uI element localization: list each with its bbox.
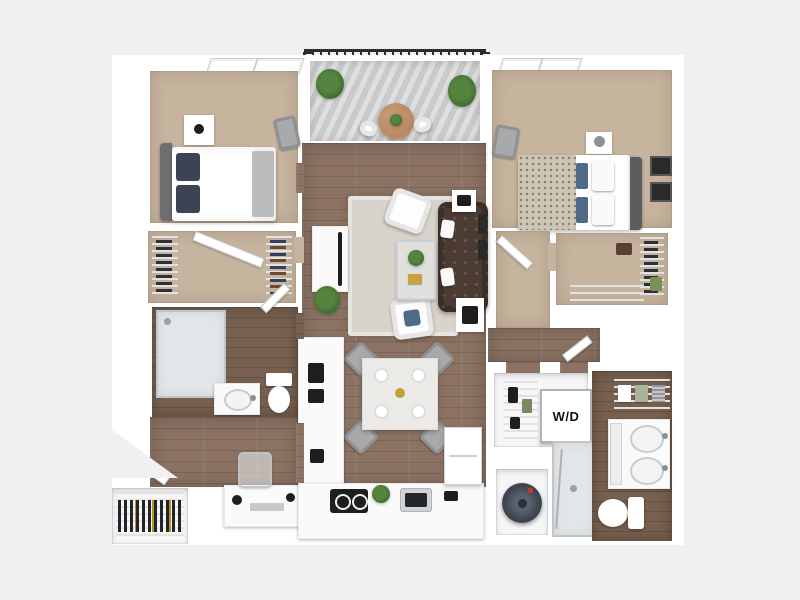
closet1-clothes-left <box>156 240 172 294</box>
closet1-doorway <box>294 237 304 263</box>
dining-centerpiece <box>395 388 405 398</box>
desk-keyboard <box>250 503 284 511</box>
closet1-door <box>192 231 264 268</box>
toilet-bowl <box>598 499 628 527</box>
bedroom1-pillow <box>176 185 200 213</box>
bedroom2 <box>492 70 672 228</box>
cooktop-burner <box>352 494 368 510</box>
bathroom1-sink <box>224 389 252 411</box>
balcony-plant-right <box>448 75 476 107</box>
bedroom1 <box>150 71 298 223</box>
peninsula-item <box>308 363 324 383</box>
dining-plate <box>411 404 426 419</box>
shower-door-line <box>555 449 563 529</box>
bedroom2-wall-art <box>650 156 672 176</box>
bathroom1-toilet-tank <box>266 373 292 386</box>
towel-stack-gray <box>652 385 665 402</box>
towel-stack-green <box>635 385 648 402</box>
kitchen-sink-basin <box>405 493 427 507</box>
bedroom1-foot-blanket <box>252 151 274 217</box>
closet2 <box>556 233 668 305</box>
tv-screen <box>338 232 342 286</box>
refrigerator-door-seam <box>449 455 477 457</box>
dining-plate <box>411 368 426 383</box>
sofa-pillow <box>440 267 455 287</box>
bathroom2-toilet <box>596 489 648 535</box>
bedroom2-lamp <box>594 136 605 147</box>
kitchen-peninsula <box>298 337 344 485</box>
bedroom2-wall-art <box>650 182 672 202</box>
coat-closet <box>112 488 188 544</box>
bedroom1-lamp <box>194 124 204 134</box>
sofa-pillow <box>440 219 455 239</box>
bedroom2-pillow-blue <box>576 197 588 223</box>
bedroom1-headboard <box>160 143 172 221</box>
bathroom2-sink <box>630 425 664 453</box>
pantry-item-green <box>522 399 532 413</box>
towel-stack <box>618 385 631 402</box>
bathroom1 <box>152 307 298 417</box>
water-heater-cap <box>518 499 527 508</box>
bathroom1-vanity <box>214 383 260 415</box>
bathroom2 <box>592 371 672 541</box>
bedroom1-chair <box>273 115 301 151</box>
washer-dryer-unit: W/D <box>540 389 592 443</box>
bedroom2-knit-blanket <box>518 155 576 230</box>
utility-closet <box>496 469 548 535</box>
dining-table <box>362 358 438 430</box>
living-wall-art <box>478 214 487 234</box>
bedroom2-pillow-blue <box>576 163 588 189</box>
side-table-bottom <box>456 298 484 332</box>
foyer <box>150 417 298 487</box>
cooktop <box>330 489 368 513</box>
kitchen-counter <box>298 483 484 539</box>
bedroom1-pillow <box>176 153 200 181</box>
living-wall-art <box>478 240 487 260</box>
bedroom2-pillow <box>592 161 614 191</box>
desk <box>224 485 300 527</box>
dining-plate <box>374 404 389 419</box>
refrigerator <box>444 427 482 485</box>
bedroom2-pillow <box>592 195 614 225</box>
balcony-table-plant <box>390 114 402 126</box>
tv-console <box>312 226 348 292</box>
side-table-books <box>457 195 471 206</box>
balcony-chair-left <box>358 119 379 139</box>
bedroom1-doorway <box>296 163 304 193</box>
kitchen-plant <box>372 485 390 503</box>
shower-drain <box>570 485 577 492</box>
bathroom2-shower <box>552 441 596 537</box>
bathroom1-doorway <box>296 313 304 339</box>
balcony-plant-left <box>316 69 344 99</box>
armchair-bottom <box>389 295 434 340</box>
floorplan-render: W/D <box>0 0 800 600</box>
closet2-green-bag <box>650 277 662 291</box>
water-heater <box>502 483 542 523</box>
toilet-tank <box>628 497 644 529</box>
closet2-shelf-bottom <box>570 285 644 301</box>
coffee-table-books <box>408 274 422 284</box>
dining-plate <box>374 368 389 383</box>
vanity-faucet <box>662 433 668 439</box>
vanity-faucet <box>662 465 668 471</box>
desk-lamp <box>232 495 242 505</box>
laundry-closet: W/D <box>494 373 588 447</box>
washer-dryer-label: W/D <box>553 409 580 424</box>
pantry-item <box>508 387 518 403</box>
peninsula-item <box>308 389 324 403</box>
coat-closet-clothes <box>118 500 182 532</box>
bathroom1-toilet-bowl <box>268 386 290 413</box>
pantry-item <box>510 417 520 429</box>
side-table-magazines <box>462 306 478 324</box>
desk-accessory <box>286 493 295 502</box>
shower-head <box>164 318 171 325</box>
bedroom2-bed <box>518 155 630 230</box>
living-floor-plant <box>314 286 340 314</box>
kitchen-sink <box>400 488 432 512</box>
vanity-drawers <box>610 423 622 485</box>
armchair-pillow-blue <box>403 309 421 327</box>
desk-chair <box>238 452 272 488</box>
cooktop-burner <box>335 494 351 510</box>
balcony <box>310 61 480 143</box>
bedroom2-headboard <box>630 157 642 230</box>
closet2-bag <box>616 243 632 255</box>
balcony-chair-right <box>412 115 432 134</box>
bedroom1-bed <box>172 147 276 221</box>
coffee-table-plant <box>408 250 424 266</box>
bedroom2-chair <box>491 124 520 160</box>
coffee-table <box>396 240 436 300</box>
bathroom1-faucet <box>250 395 256 401</box>
foyer-opening <box>296 423 304 483</box>
kitchen-counter-item <box>444 491 458 501</box>
water-heater-valve <box>528 488 533 493</box>
apartment-plan: W/D <box>112 55 684 545</box>
peninsula-item <box>310 449 324 463</box>
side-table-top <box>452 190 476 212</box>
bathroom2-sink <box>630 457 664 485</box>
bathroom2-vanity <box>608 419 670 489</box>
